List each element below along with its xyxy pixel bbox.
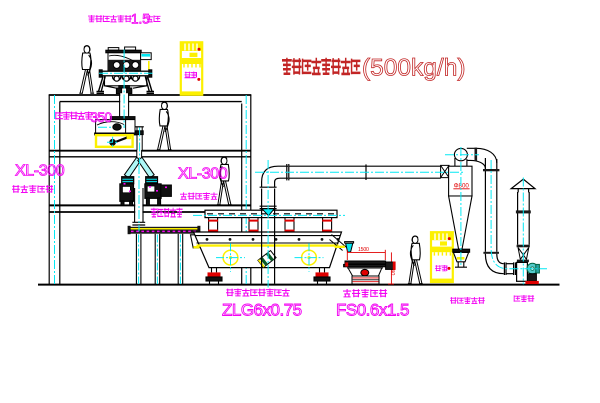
- svg-text:XL-300: XL-300: [15, 163, 65, 180]
- svg-text:1500: 1500: [358, 247, 369, 253]
- svg-text:XL-300: XL-300: [178, 166, 228, 183]
- svg-text:350: 350: [91, 110, 112, 125]
- svg-text:ZLG6x0.75: ZLG6x0.75: [222, 301, 302, 320]
- svg-text:1.5: 1.5: [131, 12, 150, 27]
- svg-text:(500kg/h): (500kg/h): [362, 55, 466, 82]
- svg-text:FS0.6x1.5: FS0.6x1.5: [336, 301, 409, 320]
